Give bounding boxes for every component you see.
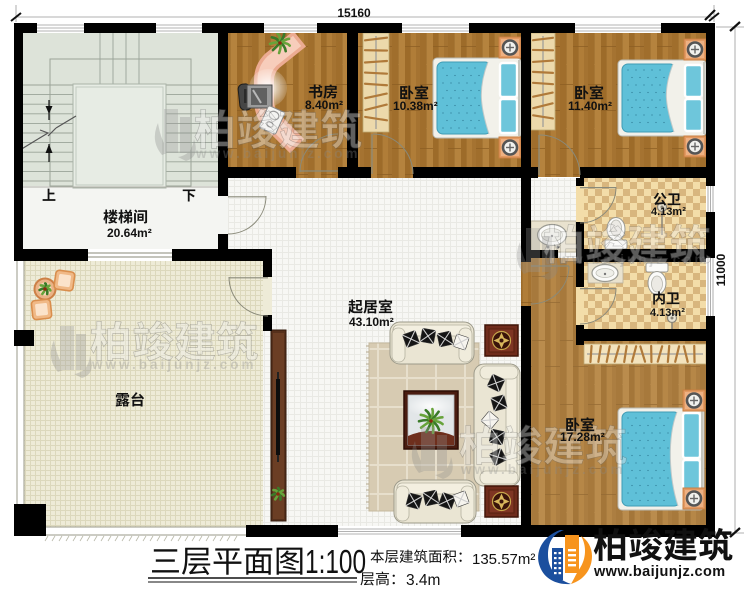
svg-text:8.40m²: 8.40m² bbox=[305, 98, 343, 112]
svg-text:15160: 15160 bbox=[337, 6, 371, 20]
svg-text:www.baijunjz.com: www.baijunjz.com bbox=[460, 462, 626, 477]
svg-text:43.10m²: 43.10m² bbox=[349, 315, 394, 329]
svg-text:4.13m²: 4.13m² bbox=[651, 206, 686, 218]
svg-text:www.baijunjz.com: www.baijunjz.com bbox=[593, 564, 726, 580]
svg-text:135.57m²: 135.57m² bbox=[472, 551, 535, 568]
svg-text:www.baijunjz.com: www.baijunjz.com bbox=[91, 357, 257, 372]
svg-text:17.28m²: 17.28m² bbox=[560, 430, 605, 444]
svg-text:1:100: 1:100 bbox=[305, 545, 366, 581]
svg-text:3.4m: 3.4m bbox=[406, 572, 440, 589]
svg-text:10.38m²: 10.38m² bbox=[393, 99, 438, 113]
svg-text:www.baijunjz.com: www.baijunjz.com bbox=[544, 252, 710, 267]
svg-text:www.baijunjz.com: www.baijunjz.com bbox=[195, 146, 361, 161]
svg-text:4.13m²: 4.13m² bbox=[650, 307, 685, 319]
svg-text:20.64m²: 20.64m² bbox=[107, 226, 152, 240]
svg-text:11000: 11000 bbox=[714, 253, 728, 286]
svg-text:11.40m²: 11.40m² bbox=[568, 99, 612, 113]
